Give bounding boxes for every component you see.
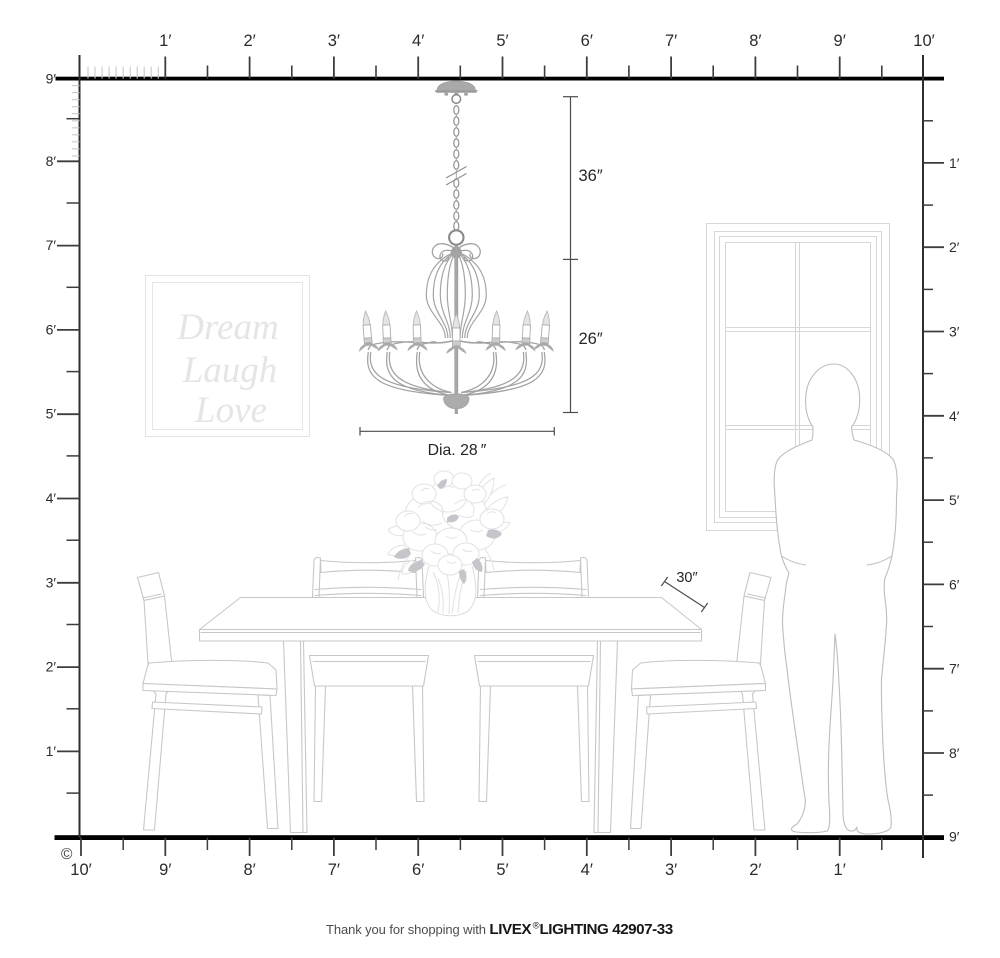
svg-text:10′: 10′ — [70, 861, 91, 879]
svg-text:3′: 3′ — [328, 32, 340, 50]
svg-text:1′: 1′ — [834, 861, 846, 879]
svg-text:6′: 6′ — [581, 32, 593, 50]
svg-text:9′: 9′ — [949, 829, 960, 845]
svg-text:7′: 7′ — [949, 661, 960, 677]
svg-text:1′: 1′ — [949, 155, 960, 171]
svg-text:26″: 26″ — [579, 330, 603, 348]
svg-text:7′: 7′ — [328, 861, 340, 879]
svg-text:7′: 7′ — [46, 237, 57, 253]
svg-text:8′: 8′ — [46, 153, 57, 169]
svg-text:Dia. 28 ″: Dia. 28 ″ — [428, 442, 487, 459]
svg-text:6′: 6′ — [46, 321, 57, 337]
svg-text:3′: 3′ — [46, 574, 57, 590]
svg-text:4′: 4′ — [46, 490, 57, 506]
svg-text:2′: 2′ — [949, 239, 960, 255]
svg-text:5′: 5′ — [496, 861, 508, 879]
svg-text:9′: 9′ — [159, 861, 171, 879]
svg-text:8′: 8′ — [243, 861, 255, 879]
svg-text:30″: 30″ — [676, 570, 697, 586]
svg-text:1′: 1′ — [159, 32, 171, 50]
svg-text:Thank you for shopping with LI: Thank you for shopping with LIVEX®LIGHTI… — [326, 921, 673, 939]
svg-text:6′: 6′ — [412, 861, 424, 879]
svg-text:5′: 5′ — [949, 492, 960, 508]
svg-text:8′: 8′ — [749, 32, 761, 50]
svg-text:5′: 5′ — [46, 406, 57, 422]
svg-text:4′: 4′ — [581, 861, 593, 879]
svg-text:5′: 5′ — [496, 32, 508, 50]
svg-text:3′: 3′ — [949, 324, 960, 340]
svg-text:©: © — [61, 846, 73, 863]
svg-text:10′: 10′ — [913, 32, 934, 50]
svg-text:Laugh: Laugh — [182, 350, 278, 391]
svg-text:36″: 36″ — [579, 167, 603, 185]
svg-text:2′: 2′ — [243, 32, 255, 50]
svg-text:9′: 9′ — [46, 71, 57, 87]
svg-text:6′: 6′ — [949, 576, 960, 592]
svg-text:2′: 2′ — [46, 659, 57, 675]
svg-text:Love: Love — [194, 390, 267, 431]
svg-text:4′: 4′ — [412, 32, 424, 50]
svg-text:2′: 2′ — [749, 861, 761, 879]
svg-text:8′: 8′ — [949, 745, 960, 761]
svg-text:3′: 3′ — [665, 861, 677, 879]
svg-text:Dream: Dream — [176, 307, 278, 348]
svg-text:4′: 4′ — [949, 408, 960, 424]
svg-text:7′: 7′ — [665, 32, 677, 50]
svg-text:1′: 1′ — [46, 743, 57, 759]
svg-text:9′: 9′ — [834, 32, 846, 50]
